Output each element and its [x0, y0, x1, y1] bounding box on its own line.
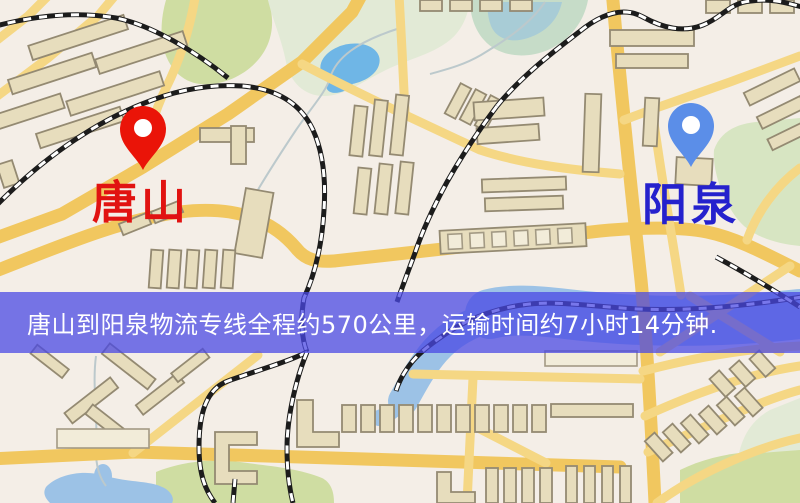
origin-city-label: 唐山: [92, 180, 190, 225]
destination-pin-icon: [661, 97, 721, 169]
map-canvas: [0, 0, 800, 503]
route-info-banner: 唐山到阳泉物流专线全程约570公里，运输时间约7小时14分钟.: [0, 292, 800, 353]
route-info-text: 唐山到阳泉物流专线全程约570公里，运输时间约7小时14分钟.: [27, 305, 718, 340]
destination-city-label: 阳泉: [642, 182, 740, 227]
map-screenshot: 唐山 阳泉 唐山到阳泉物流专线全程约570公里，运输时间约7小时14分钟.: [0, 0, 800, 503]
origin-pin-icon: [113, 100, 173, 172]
